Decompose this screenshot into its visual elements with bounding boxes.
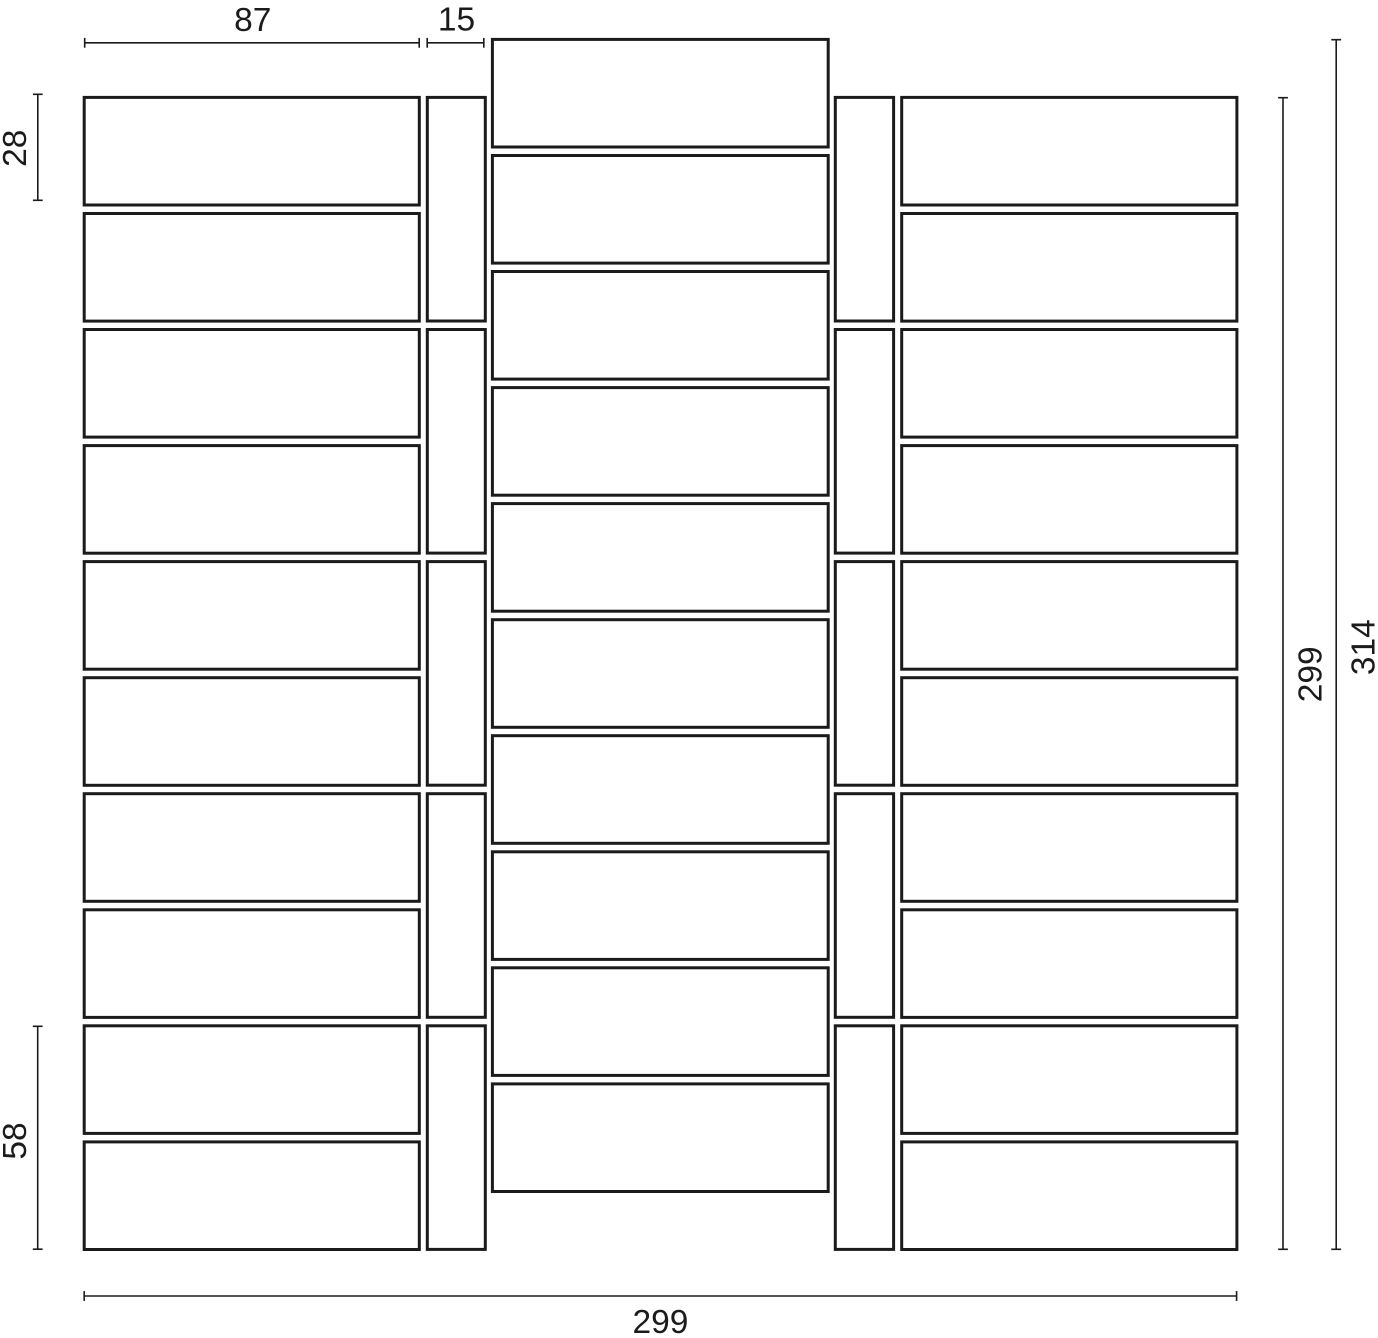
svg-text:87: 87 — [234, 2, 271, 39]
svg-text:299: 299 — [1293, 646, 1330, 702]
svg-text:299: 299 — [632, 1304, 688, 1338]
svg-text:28: 28 — [0, 130, 34, 167]
svg-text:15: 15 — [438, 1, 475, 38]
svg-text:314: 314 — [1345, 619, 1378, 675]
svg-text:58: 58 — [0, 1122, 34, 1159]
